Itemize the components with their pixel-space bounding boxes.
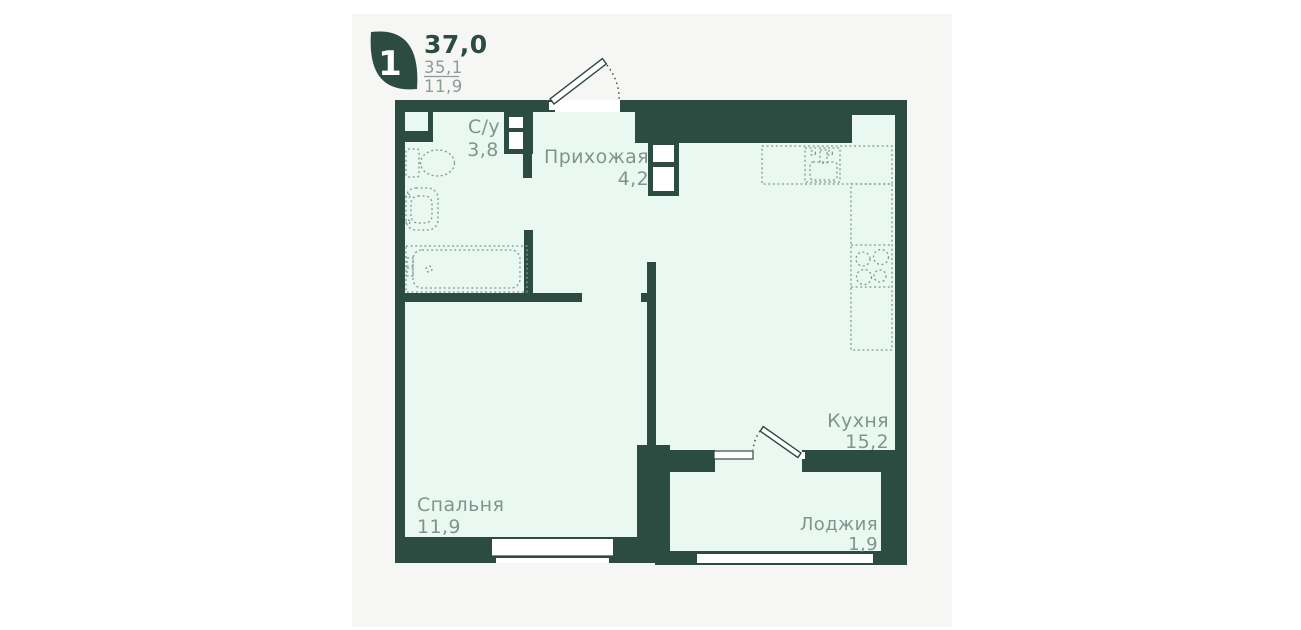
room-label-loggia: Лоджия <box>800 514 878 535</box>
bedroom-window <box>492 539 613 556</box>
floorplan-page: 1 37,0 35,1 11,9 <box>0 0 1301 630</box>
area-total: 37,0 <box>424 30 488 59</box>
area-room: 11,9 <box>424 77 463 96</box>
room-area-kitchen: 15,2 <box>845 431 889 453</box>
wall-loggia-right <box>881 460 895 565</box>
floorplan-svg: 1 37,0 35,1 11,9 <box>0 0 1301 630</box>
area-living: 35,1 <box>424 58 463 77</box>
room-area-bathroom: 3,8 <box>467 139 498 161</box>
kitchen-loggia-window <box>714 451 753 459</box>
hall-duct-cell <box>653 167 674 191</box>
wall-top-left <box>395 100 555 112</box>
wall-bath-bottom <box>395 293 582 302</box>
bedroom-window-sill <box>496 558 609 563</box>
room-label-kitchen: Кухня <box>827 410 889 432</box>
entrance-jamb-block <box>615 102 620 110</box>
bath-duct-cell <box>509 117 523 128</box>
room-label-bathroom: С/у <box>468 116 500 138</box>
wall-top-thick-band <box>635 100 852 143</box>
room-area-bedroom: 11,9 <box>417 516 461 538</box>
room-label-hallway: Прихожая <box>544 146 649 168</box>
hall-duct-cell <box>653 145 674 162</box>
wall-right-outer <box>895 100 907 565</box>
loggia-glazing <box>697 554 873 563</box>
bath-niche-side <box>428 112 433 142</box>
wall-left-outer <box>395 100 405 563</box>
entrance-opening <box>555 100 620 112</box>
wall-central <box>647 262 656 452</box>
rooms-count-badge: 1 <box>378 44 402 84</box>
wall-kitchen-bottom-left <box>637 450 715 472</box>
room-label-bedroom: Спальня <box>417 494 504 516</box>
room-area-loggia: 1,9 <box>848 534 878 555</box>
wall-top-mid <box>620 100 635 112</box>
bath-duct-cell <box>509 132 523 149</box>
room-area-hallway: 4,2 <box>618 168 649 190</box>
wall-bath-right-lower <box>524 230 533 302</box>
